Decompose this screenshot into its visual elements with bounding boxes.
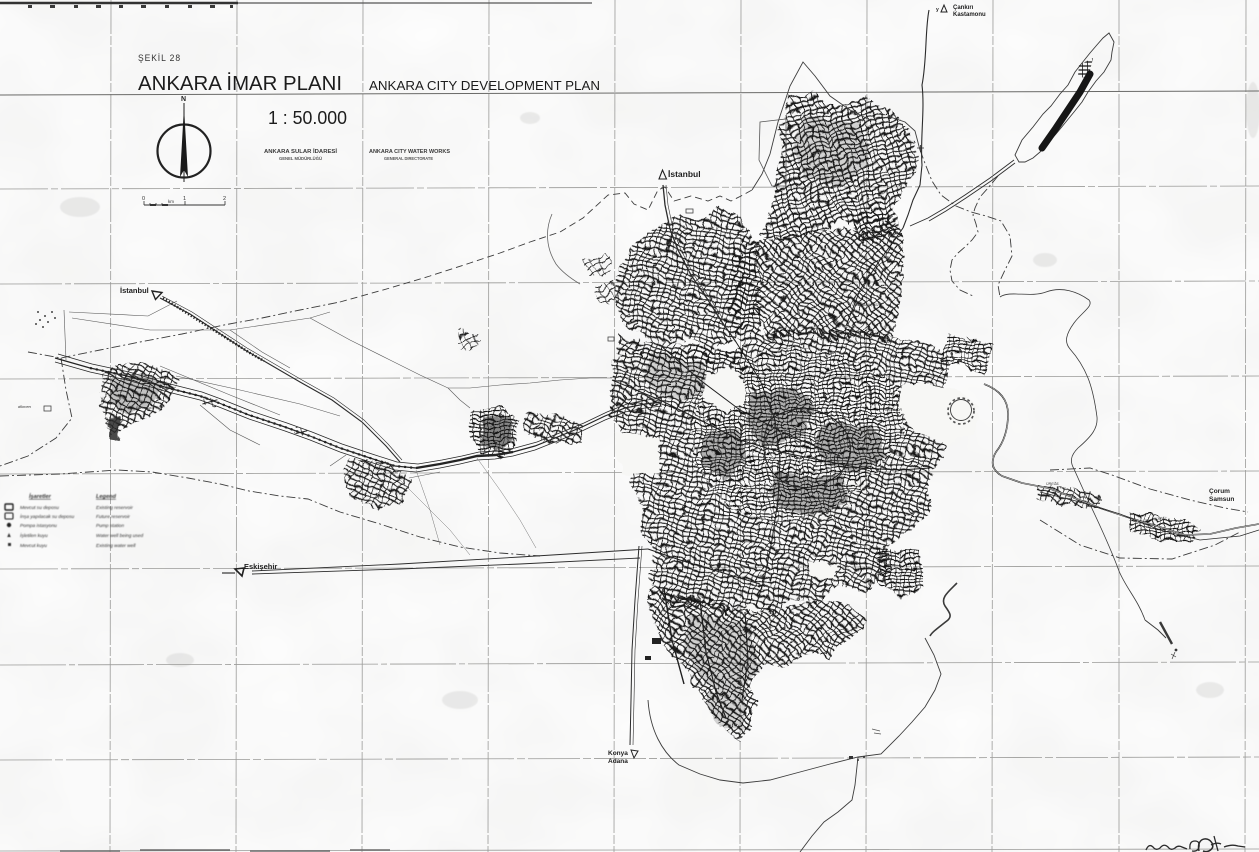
svg-text:dikmen: dikmen [18,404,32,409]
svg-text:Mevcut kuyu: Mevcut kuyu [20,543,47,549]
svg-text:Pump station: Pump station [96,523,124,529]
svg-text:İşaretler: İşaretler [29,493,52,500]
svg-text:Çorum: Çorum [1209,488,1230,495]
svg-text:N: N [181,96,186,103]
svg-text:Samsun: Samsun [1209,496,1234,503]
svg-text:Legend: Legend [96,494,116,500]
svg-text:2: 2 [223,196,226,202]
svg-text:Çankırı: Çankırı [953,5,974,11]
svg-text:Future reservoir: Future reservoir [96,514,130,520]
svg-text:km: km [168,199,174,204]
svg-text:İMRAHOR: İMRAHOR [885,408,902,412]
svg-text:Etimesgut: Etimesgut [136,405,155,410]
svg-text:GENERAL DIRECTORATE: GENERAL DIRECTORATE [384,156,433,161]
svg-text:0: 0 [142,196,145,202]
svg-text:Existing water well: Existing water well [96,543,136,549]
svg-text:Konya: Konya [608,750,628,757]
svg-text:ŞEKİL 28: ŞEKİL 28 [138,53,181,64]
svg-text:Kastamonu: Kastamonu [953,12,986,18]
svg-text:İşletilen kuyu: İşletilen kuyu [20,532,48,539]
svg-text:Water well being used: Water well being used [96,533,143,539]
svg-text:GENEL MÜDÜRLÜĞÜ: GENEL MÜDÜRLÜĞÜ [279,156,322,161]
svg-text:Pompa istasyonu: Pompa istasyonu [20,523,57,529]
svg-text:İstanbul: İstanbul [120,286,149,295]
svg-text:ANKARA CITY WATER WORKS: ANKARA CITY WATER WORKS [369,149,450,155]
svg-text:KAYAŞ: KAYAŞ [1155,517,1167,521]
svg-text:Mevcut su deposu: Mevcut su deposu [20,505,59,511]
svg-text:1 : 50.000: 1 : 50.000 [268,108,347,128]
svg-text:1: 1 [183,196,186,202]
svg-text:GÖLF BAHÇESİ: GÖLF BAHÇESİ [852,303,879,307]
svg-text:ANKARA İMAR PLANI: ANKARA İMAR PLANI [138,72,342,95]
svg-text:Adana: Adana [608,758,628,765]
svg-text:ANKARA SULAR İDARESİ: ANKARA SULAR İDARESİ [264,148,337,155]
svg-text:ANKARA CITY DEVELOPMENT PLAN: ANKARA CITY DEVELOPMENT PLAN [369,78,600,93]
svg-text:ÜREĞİL: ÜREĞİL [1046,481,1059,486]
svg-text:Eskişehir: Eskişehir [244,562,277,571]
svg-text:İnşa yapılacak su deposu: İnşa yapılacak su deposu [20,513,74,520]
svg-text:y: y [936,7,939,13]
svg-text:İstanbul: İstanbul [668,169,701,179]
svg-text:Existing reservoir: Existing reservoir [96,505,133,511]
